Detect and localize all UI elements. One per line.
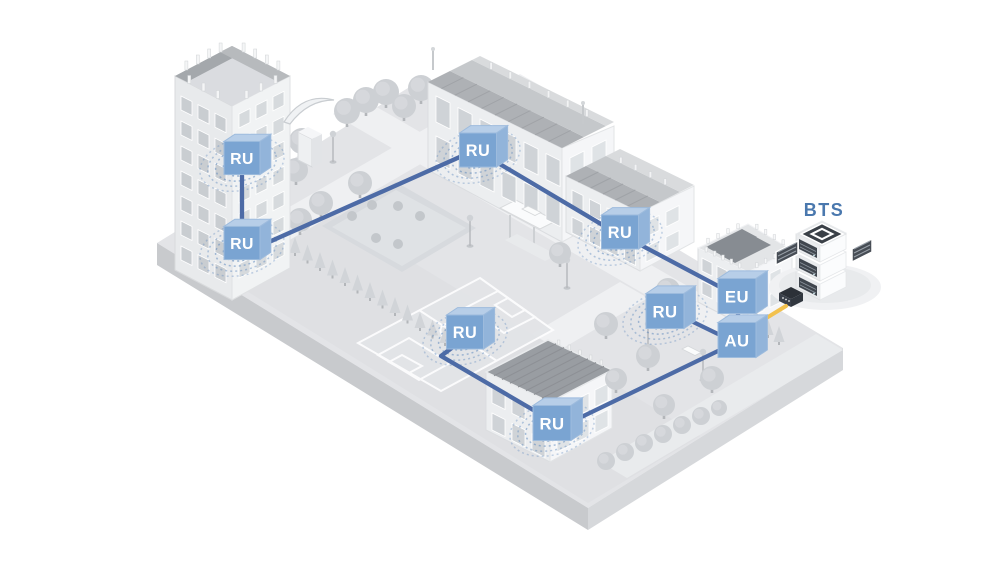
isometric-campus-diagram: RURURURURURURUEUAU BTS [0, 0, 1000, 562]
unit-label: RU [230, 236, 254, 253]
unit-label: AU [724, 331, 749, 350]
scene-canvas: RURURURURURURUEUAU [0, 0, 1000, 562]
unit-label: EU [725, 287, 749, 306]
unit-label: RU [539, 414, 564, 433]
unit-node-ru-field: RU [447, 308, 495, 349]
unit-node-ru-school: RU [460, 126, 508, 167]
unit-label: RU [466, 142, 491, 160]
unit-node-ru-gym: RU [533, 398, 582, 441]
unit-node-ru-annex: RU [602, 208, 650, 249]
side-panel-right [852, 239, 872, 262]
unit-node-ru-plaza: RU [646, 286, 695, 329]
unit-node-ru-tower-lower: RU [224, 219, 271, 259]
unit-node-eu: EU [718, 271, 767, 314]
unit-label: RU [453, 324, 478, 342]
unit-node-ru-tower-upper: RU [224, 134, 271, 174]
unit-label: RU [608, 224, 633, 242]
unit-label: RU [230, 151, 254, 168]
unit-label: RU [652, 302, 677, 321]
bts-label: BTS [794, 200, 854, 221]
unit-node-au: AU [718, 315, 767, 358]
